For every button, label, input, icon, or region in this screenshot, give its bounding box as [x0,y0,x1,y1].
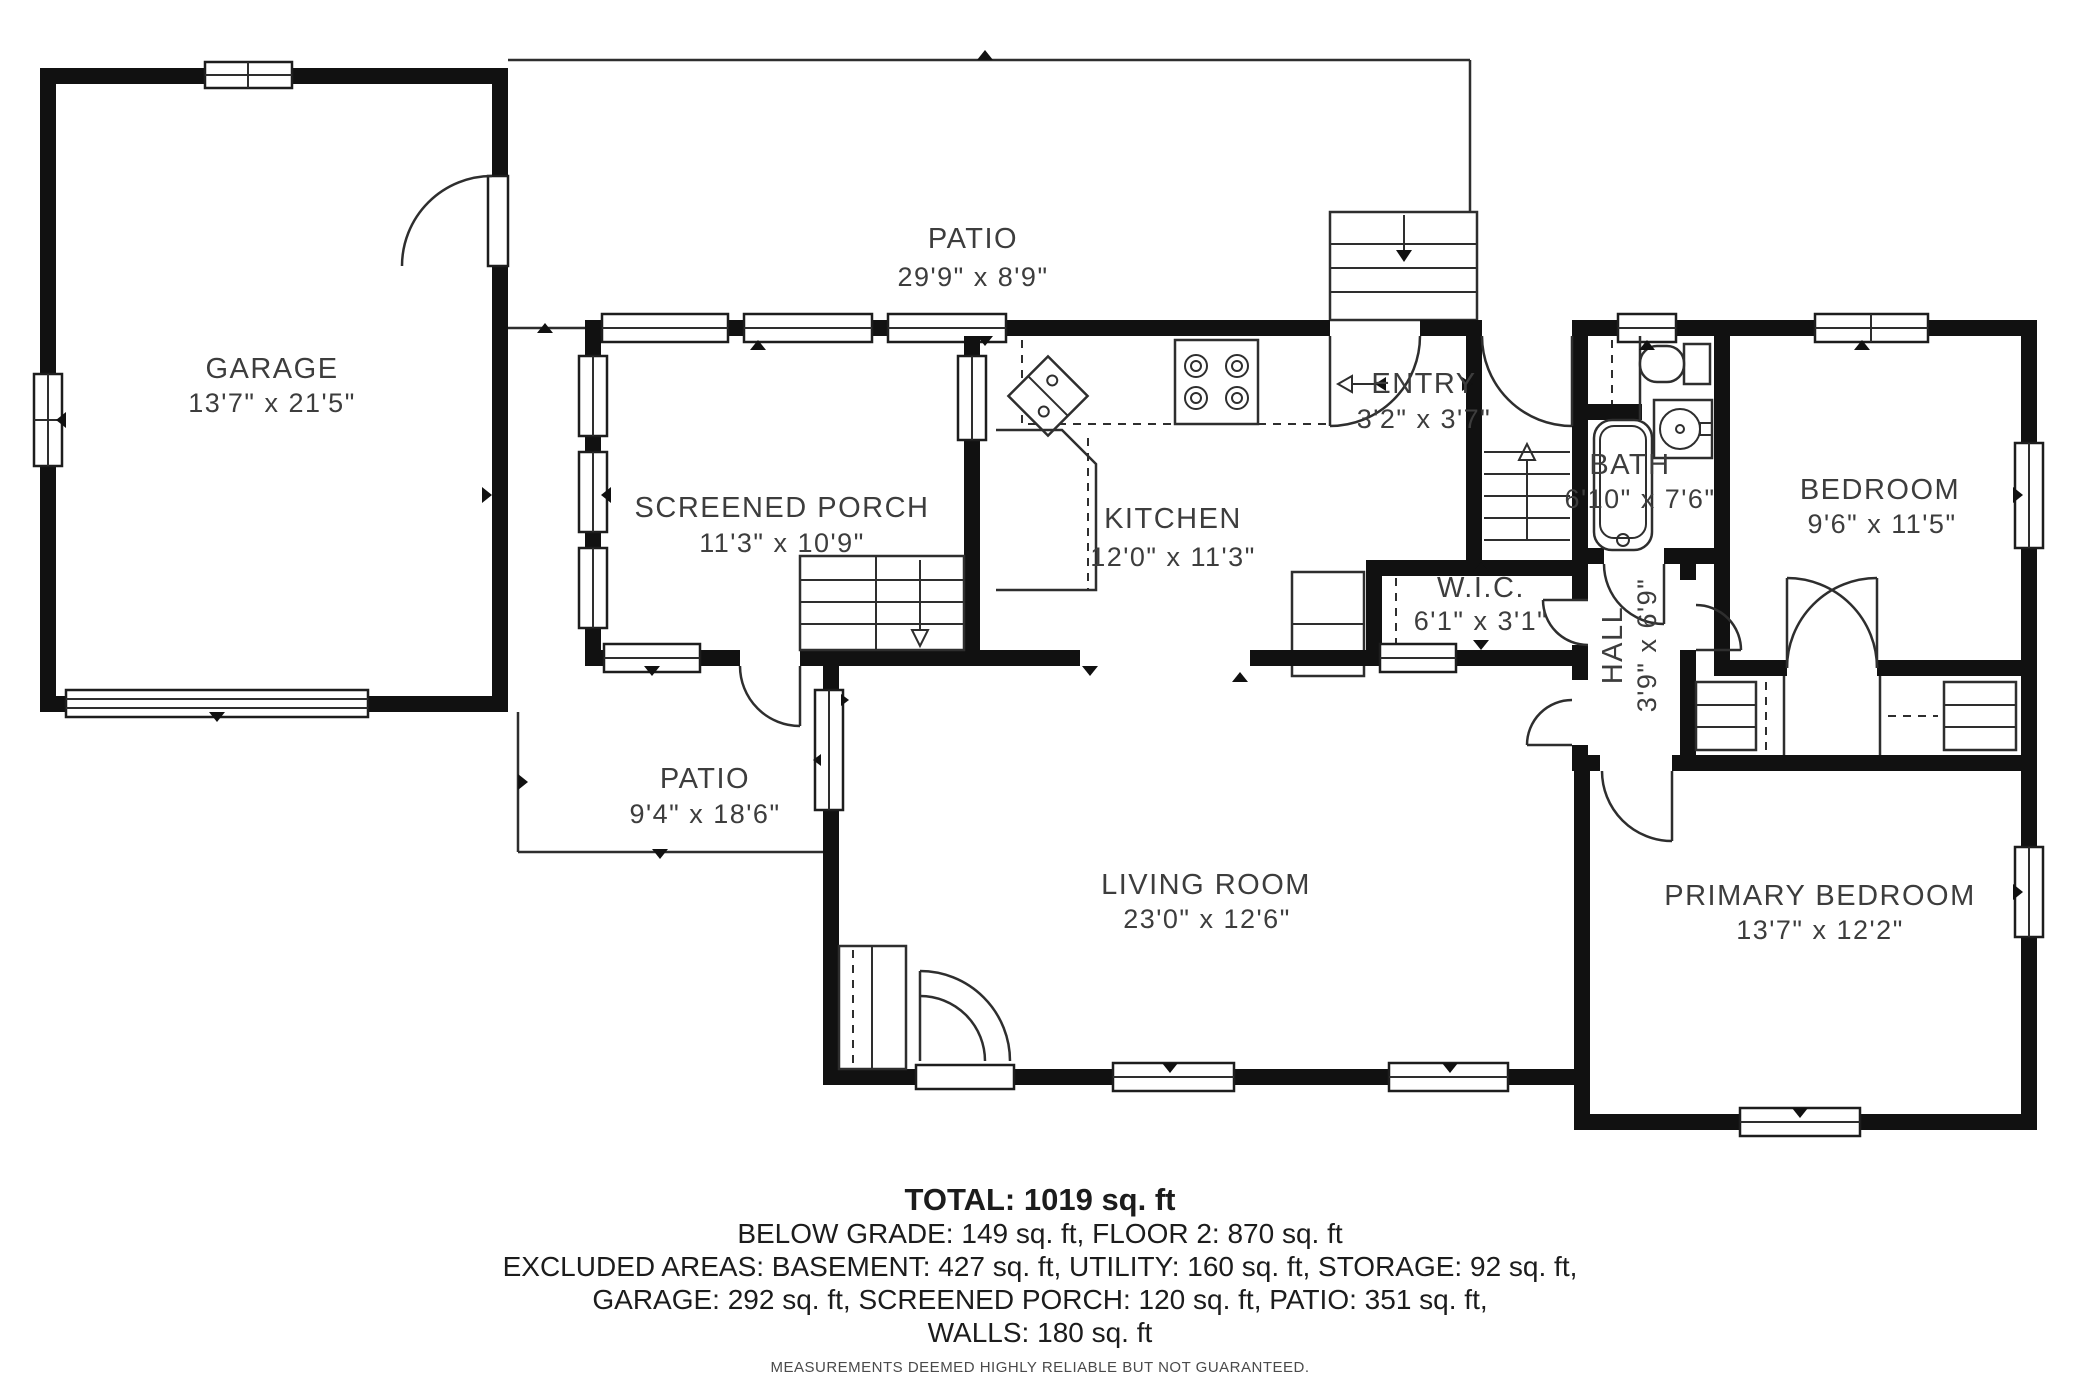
kitchen-peninsula [996,430,1096,590]
room-label-entry: ENTRY [1371,368,1476,400]
summary-line-1: BELOW GRADE: 149 sq. ft, FLOOR 2: 870 sq… [0,1217,2080,1250]
room-label-garage: GARAGE [205,353,338,385]
room-dims-entry: 3'2" x 3'7" [1357,404,1492,434]
room-label-living-room: LIVING ROOM [1101,869,1311,901]
stove [1175,340,1258,424]
room-dims-screened-porch: 11'3" x 10'9" [699,528,865,558]
room-label-patio-left: PATIO [660,763,750,795]
porch-stairs [800,556,964,650]
room-dims-primary-bedroom: 13'7" x 12'2" [1736,915,1904,945]
room-dims-wic: 6'1" x 3'1" [1414,606,1549,636]
porch-screen-panels-left [579,356,607,628]
bath-window-top [1618,314,1676,342]
porch-screen-panels-top [602,314,1006,342]
bedroom-walls [1714,336,2037,676]
interior-window-kitchen-living [1380,644,1456,672]
bedroom-double-doors [1787,578,1877,668]
room-label-screened-porch: SCREENED PORCH [635,492,930,524]
summary-line-4: WALLS: 180 sq. ft [0,1316,2080,1349]
garage-window-top [205,62,292,88]
front-door [916,971,1014,1089]
living-north-wall [980,650,1588,666]
bedroom-window-top [1815,314,1928,342]
room-label-primary-bedroom: PRIMARY BEDROOM [1664,880,1975,912]
exterior-stairs [1330,212,1477,320]
summary-disclaimer: MEASUREMENTS DEEMED HIGHLY RELIABLE BUT … [0,1359,2080,1376]
closet-a [1696,676,1784,755]
primary-door [1602,771,1672,841]
closet-b [1880,676,2016,755]
room-dims-living-room: 23'0" x 12'6" [1123,904,1291,934]
porch-window-right [958,356,986,440]
room-label-bath: BATH [1589,449,1670,481]
room-dims-bedroom: 9'6" x 11'5" [1807,509,1956,539]
summary-block: TOTAL: 1019 sq. ft BELOW GRADE: 149 sq. … [0,1183,2080,1376]
room-dims-patio-top: 29'9" x 8'9" [897,262,1048,292]
summary-line-2: EXCLUDED AREAS: BASEMENT: 427 sq. ft, UT… [0,1250,2080,1283]
hall-living-door [1527,700,1572,745]
room-label-kitchen: KITCHEN [1104,503,1242,535]
room-label-wic: W.I.C. [1437,572,1525,604]
entry-door [1482,336,1572,426]
porch-patio-door [740,666,800,726]
interior-stairs [1484,444,1570,540]
room-dims-hall: 3'9" x 6'9" [1632,578,1662,713]
room-dims-bath: 6'10" x 7'6" [1564,484,1715,514]
garage-side-door [402,176,508,266]
living-patio-slider [813,690,849,810]
room-dims-kitchen: 12'0" x 11'3" [1090,542,1256,572]
room-dims-garage: 13'7" x 21'5" [188,388,356,418]
room-dims-patio-left: 9'4" x 18'6" [629,799,780,829]
room-label-hall: HALL [1597,606,1629,685]
room-label-patio-top: PATIO [928,223,1018,255]
summary-total: TOTAL: 1019 sq. ft [0,1183,2080,1217]
floor-plan-drawing: GARAGE 13'7" x 21'5" PATIO 29'9" x 8'9" … [0,0,2080,1386]
living-closet [839,946,906,1069]
floor-plan-page: { "rooms": [ {"name":"GARAGE","dims":"13… [0,0,2080,1386]
wic-door [1543,600,1588,645]
summary-line-3: GARAGE: 292 sq. ft, SCREENED PORCH: 120 … [0,1283,2080,1316]
room-label-bedroom: BEDROOM [1800,474,1960,506]
